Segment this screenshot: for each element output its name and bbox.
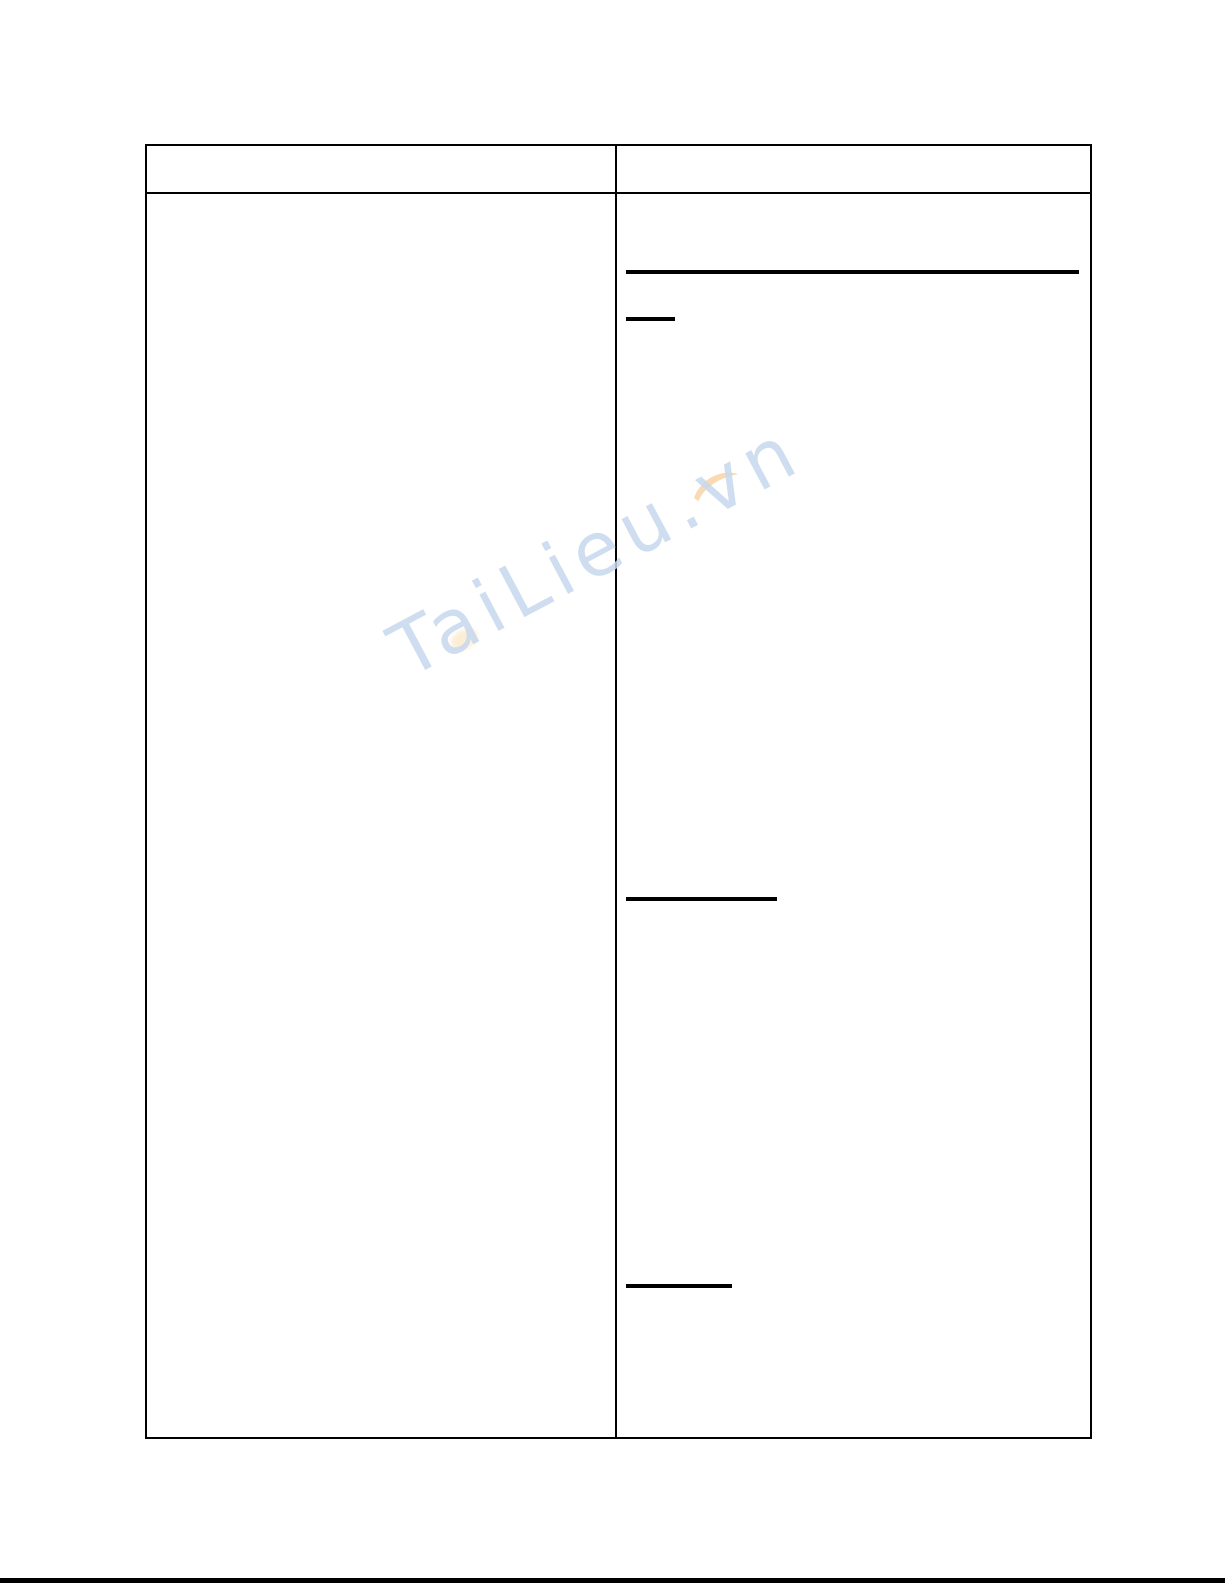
blank-underline-3 [626,897,777,901]
blank-underline-2 [626,317,675,321]
document-page: TaiLieu.vn [0,0,1225,1585]
table-header-cell-left [147,146,615,192]
form-table [145,144,1092,1439]
table-body-cell-right [617,194,1092,1437]
table-body-cell-left [147,194,615,1437]
blank-underline-4 [626,1284,732,1288]
page-break-bar [0,1578,1225,1583]
blank-underline-1 [626,270,1079,274]
table-header-cell-right [617,146,1092,192]
